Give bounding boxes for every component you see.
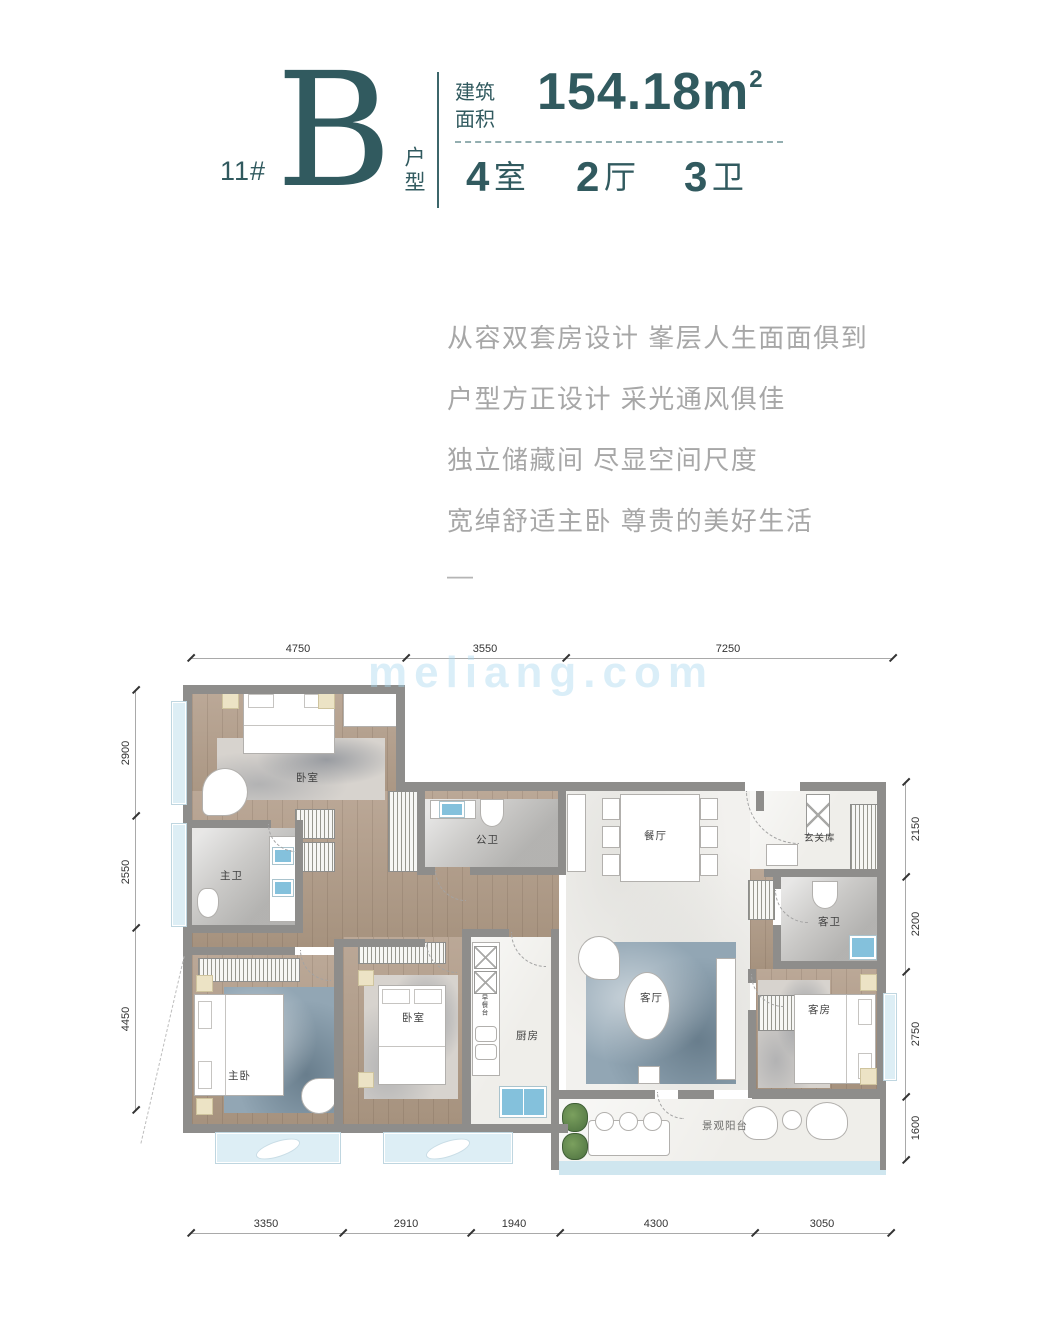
bed [378,985,446,1085]
nightstand [358,1072,374,1088]
spec-hall: 2 厅 [576,152,636,201]
header-divider [437,72,439,208]
room-label-public-bath: 公卫 [476,832,499,847]
dim-top-1: 4750 [286,643,310,655]
description-dash: — [447,560,947,591]
area-label: 建筑 面积 [455,80,495,134]
view-dashed-line [140,956,185,1144]
armchair [202,768,248,816]
dining-chair [602,826,620,848]
dim-bottom-4: 4300 [644,1218,668,1230]
room-label-living: 客厅 [640,990,663,1005]
spec-bath-num: 3 [684,153,707,200]
lounge-chair [578,936,620,980]
wall [417,867,435,875]
room-label-bedroom2: 卧室 [402,1010,425,1025]
cooktop [475,1026,497,1042]
wall [558,791,566,875]
desk [343,693,401,727]
dim-tick [887,1229,895,1237]
nightstand [196,1098,213,1115]
type-letter: B [276,52,392,210]
kitchen-sink [500,1087,546,1117]
spec-hall-num: 2 [576,153,599,200]
area-value: 154.18m [537,63,749,121]
entry-bench [766,844,798,866]
nightstand [196,975,213,992]
nightstand [222,692,239,709]
sink [273,880,293,896]
header-dashed-rule [455,141,783,143]
spec-room-unit: 室 [494,159,526,195]
room-label-guest-room: 客房 [808,1002,831,1017]
dim-tick [132,924,140,932]
spec-room: 4 室 [466,152,526,201]
dim-left-1: 2900 [120,741,132,765]
room-label-balcony: 景观阳台 [702,1118,748,1133]
wall [396,685,405,791]
wall [773,877,781,889]
spec-bath-unit: 卫 [712,159,744,195]
dim-line-top [190,658,892,659]
wall [462,929,471,1133]
dim-bottom-3: 1940 [502,1218,526,1230]
dim-tick [902,778,910,786]
room-label-master-bath: 主卫 [220,868,243,883]
dim-left-2: 2550 [120,860,132,884]
dining-chair [602,854,620,876]
wall [551,929,559,1170]
wall [748,1010,756,1090]
dim-right-4: 1600 [910,1116,922,1140]
room-label-kitchen-counter: 早餐台 [478,994,488,1017]
entry-wardrobe [850,804,878,870]
window [172,824,186,926]
nightstand [860,1068,877,1085]
wall [748,1089,886,1098]
dim-tick [902,1093,910,1101]
toilet [197,888,219,918]
dim-bottom-2: 2910 [394,1218,418,1230]
page: 11# B 户型 建筑 面积 154.18m2 4 室 2 厅 3 卫 从容双套… [0,0,1043,1339]
wall [334,939,343,1133]
dining-chair [700,798,718,820]
bay-window [384,1133,512,1163]
description-line: 户型方正设计 采光通风俱佳 [447,379,947,416]
area-superscript: 2 [749,66,762,93]
wall [183,820,271,828]
window [172,702,186,804]
wall [800,782,886,791]
spec-room-num: 4 [466,153,489,200]
building-number: 11# [220,156,266,187]
dim-tick [889,654,897,662]
sideboard [567,794,586,872]
dim-line-left [135,690,136,1110]
sink [440,802,464,817]
dining-chair [602,798,620,820]
dim-right-3: 2750 [910,1022,922,1046]
tv-console [716,958,736,1080]
side-table [638,1066,660,1084]
toilet [480,799,504,827]
balcony-table [782,1110,802,1130]
spec-hall-unit: 厅 [604,159,636,195]
dim-tick [132,1106,140,1114]
area-label-line1: 建筑 [455,80,495,107]
nightstand [860,974,877,991]
description-line: 宽绰舒适主卧 尊贵的美好生活 [447,501,947,538]
area-value-wrap: 154.18m2 [537,62,763,122]
spec-bath: 3 卫 [684,152,744,201]
room-label-dining: 餐厅 [644,828,667,843]
dining-chair [700,826,718,848]
dim-tick [902,968,910,976]
dim-right-1: 2150 [910,817,922,841]
corridor-wardrobe [388,791,419,872]
balcony-chair [806,1102,848,1140]
description-line: 从容双套房设计 峯层人生面面俱到 [447,318,947,355]
wall [559,1090,655,1099]
wall [183,1124,568,1133]
room-label-entry-storage: 玄关库 [804,830,836,844]
wall [396,782,745,791]
dim-tick [902,1156,910,1164]
dining-chair [700,854,718,876]
dim-top-3: 7250 [716,643,740,655]
dim-bottom-5: 3050 [810,1218,834,1230]
wall [764,869,886,877]
dim-top-2: 3550 [473,643,497,655]
area-label-line2: 面积 [455,107,495,134]
guest-bath-cabinet [748,880,775,920]
toilet [812,881,838,909]
balcony-sofa [588,1120,670,1156]
wall [470,867,566,875]
nightstand [358,970,374,986]
balcony-water-edge [559,1161,886,1175]
room-label-master-bedroom: 主卧 [228,1068,251,1083]
room-label-bedroom-top: 卧室 [296,770,319,785]
sink [850,936,876,959]
room-label-guest-bath: 客卫 [818,914,841,929]
dim-right-2: 2200 [910,912,922,936]
room-label-kitchen: 厨房 [516,1028,539,1043]
floorplan: 卧室 主卫 公卫 餐厅 玄关库 客卫 客厅 客房 主卧 卧室 厨房 早餐台 景观… [118,642,978,1302]
wall [183,947,295,955]
dim-left-3: 4450 [120,1007,132,1031]
description: 从容双套房设计 峯层人生面面俱到 户型方正设计 采光通风俱佳 独立储藏间 尽显空… [447,318,947,591]
appliance-box [474,946,497,969]
description-line: 独立储藏间 尽显空间尺度 [447,440,947,477]
wall [343,939,425,947]
dim-bottom-1: 3350 [254,1218,278,1230]
header: 11# B 户型 建筑 面积 154.18m2 4 室 2 厅 3 卫 [0,0,1043,260]
wall [183,925,303,933]
wall [295,820,303,933]
dim-tick [132,686,140,694]
master-bed-wardrobe [198,958,300,982]
wall [773,961,886,969]
armchair [301,1078,337,1114]
cooktop [475,1044,497,1060]
appliance-box [474,971,497,994]
bay-window [216,1133,340,1163]
door-swing [775,890,808,923]
dim-tick [132,812,140,820]
wall [183,685,405,694]
nightstand [318,692,335,709]
wall [880,1090,886,1170]
type-label: 户型 [398,146,428,196]
window [884,994,896,1080]
plant [562,1133,588,1160]
dim-tick [902,873,910,881]
wall [471,929,509,937]
dim-line-bottom [190,1233,890,1234]
wall [417,791,425,875]
coffee-table [624,972,670,1040]
